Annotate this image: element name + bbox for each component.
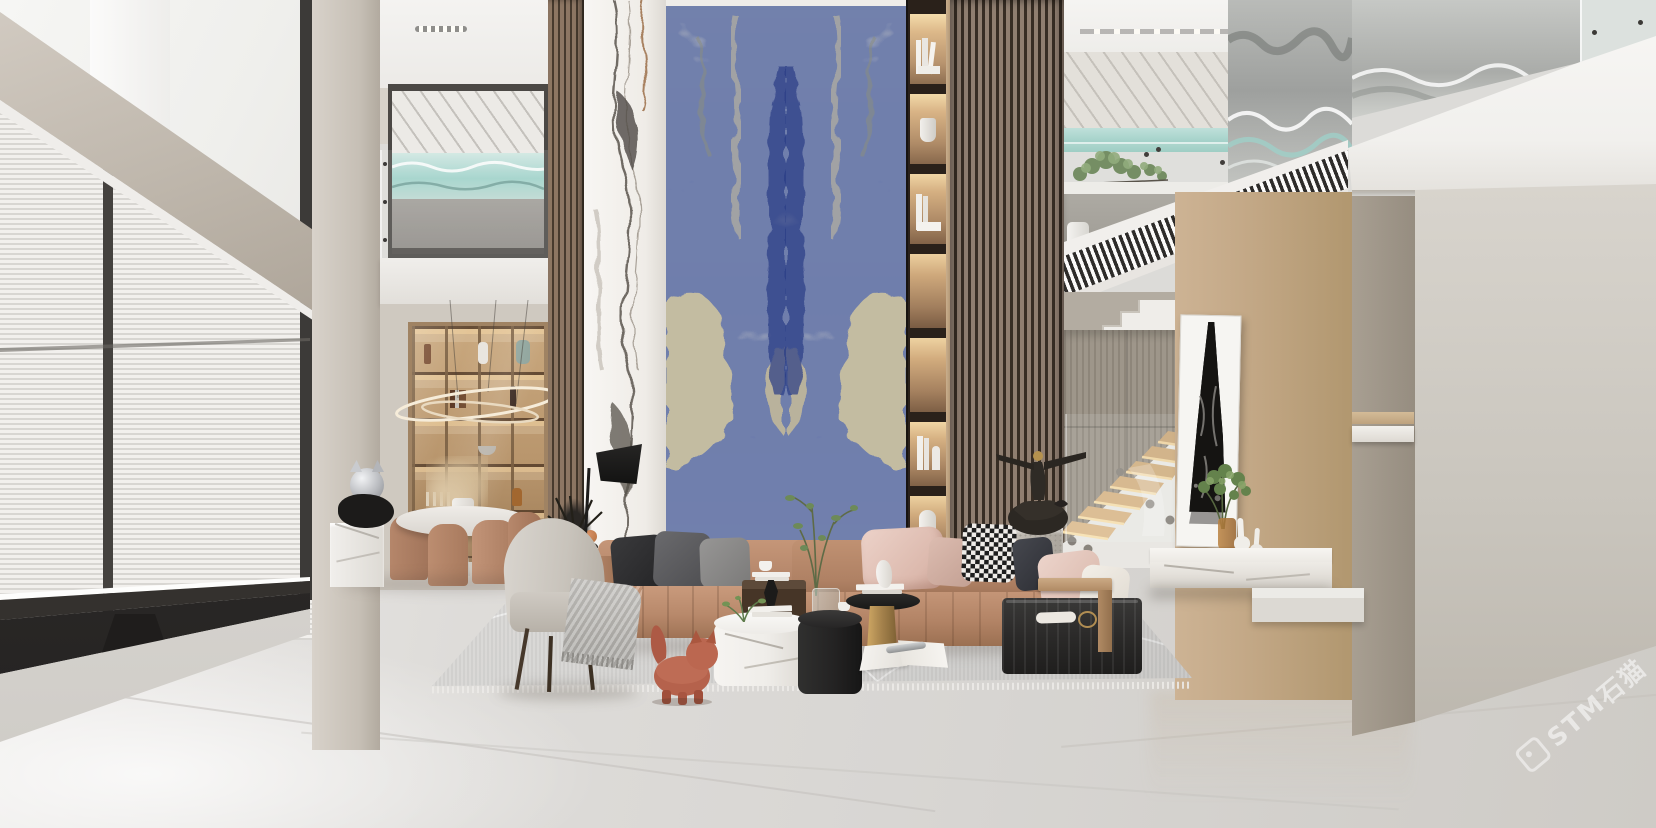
white-twist-vase [876, 560, 892, 588]
balustrade-clamp-dot [1638, 20, 1643, 25]
table-greenery-sprigs [718, 592, 770, 622]
display-niche [910, 338, 946, 412]
console-vein [1164, 564, 1234, 573]
bench-tray-towel [1036, 611, 1076, 623]
left-mezzanine-fascia [380, 258, 548, 304]
console-vein [1246, 573, 1310, 581]
balustrade-clamp-dot [383, 200, 387, 204]
left-mezzanine-ceiling [380, 0, 548, 88]
glass-balustrade-left-mezz [380, 150, 550, 262]
marble-step-block [1252, 588, 1364, 622]
black-drum-table [798, 620, 862, 694]
display-niche [910, 94, 946, 164]
balustrade-clamp-dot [1220, 160, 1225, 165]
slatted-ceiling-view [392, 91, 544, 153]
display-niche [910, 174, 946, 244]
watermark-text: STM石猫 [1538, 650, 1653, 755]
niche-books [924, 438, 929, 470]
fringed-throw [561, 578, 643, 670]
white-books-stack [862, 590, 902, 594]
cat-sculpture-base-drape [338, 494, 394, 528]
black-drum-top [798, 610, 862, 628]
niche-books [917, 436, 923, 470]
display-niche [910, 254, 946, 328]
marble-console-top [1150, 548, 1332, 562]
stm-watermark-logo-dot [1525, 750, 1533, 758]
pillow-houndstooth [961, 523, 1017, 583]
wall-shelf-small-lower [1352, 426, 1414, 442]
bench-rib-texture [1002, 598, 1142, 674]
terracotta-cat-figurine [642, 614, 724, 706]
oak-arm-ledge-side [1098, 590, 1112, 652]
balustrade-clamp-dot [1144, 152, 1149, 157]
drum-vein [744, 657, 799, 669]
dark-texture-band [1352, 196, 1415, 736]
niche-books [917, 222, 941, 231]
greige-wall-pier [312, 0, 380, 750]
display-niche [910, 14, 946, 84]
right-mezzanine-interior [1064, 52, 1228, 152]
balustrade-clamp-dot [383, 162, 387, 166]
marble-console-face [1150, 562, 1332, 588]
interior-render-scene: STM石猫 [0, 0, 1656, 828]
niche-books [918, 66, 940, 74]
ring-chandelier [388, 300, 564, 436]
niche-figure [932, 446, 940, 470]
black-leather-bench [1002, 598, 1142, 674]
bench-top-highlight [1006, 600, 1138, 603]
wall-shelf-small [1352, 412, 1414, 424]
drum-vein [725, 633, 784, 649]
balustrade-clamp-dot [1156, 147, 1161, 152]
display-niche-column [906, 0, 952, 560]
vase-branches [770, 478, 862, 598]
display-niche [910, 422, 946, 486]
bench-gold-ring [1078, 611, 1097, 628]
slatted-ceiling-view [1064, 52, 1228, 128]
ceiling-spotlight-track [415, 26, 467, 32]
niche-vase [920, 118, 936, 142]
balustrade-clamp-dot [383, 238, 387, 242]
balustrade-clamp-dot [1592, 30, 1597, 35]
dark-rock-sculpture [988, 440, 1092, 536]
